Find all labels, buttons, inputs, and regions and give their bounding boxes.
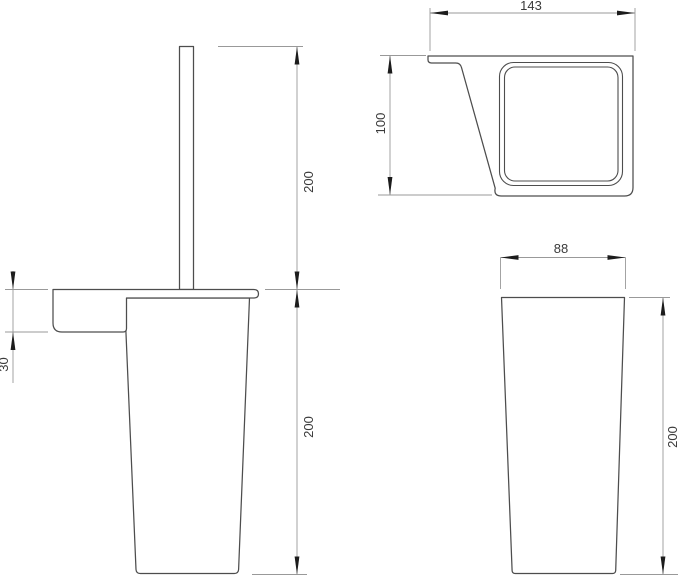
arrowhead-down-icon xyxy=(11,272,16,290)
dim-label-bracket-depth: 30 xyxy=(0,357,11,371)
arrowhead-down-icon xyxy=(295,557,300,575)
holder-top-outline xyxy=(428,56,633,196)
dim-label-cup-width: 88 xyxy=(554,241,568,256)
brush-cup-front xyxy=(125,298,250,574)
brush-cup-side xyxy=(502,298,625,574)
dim-label-handle-height: 200 xyxy=(301,171,316,193)
side-view: 88 200 xyxy=(501,241,678,575)
arrowhead-up-icon xyxy=(388,56,393,74)
arrowhead-up-icon xyxy=(295,47,300,65)
arrowhead-up-icon xyxy=(661,298,666,316)
dim-label-overall-depth: 100 xyxy=(373,113,388,135)
dim-label-cup-height: 200 xyxy=(301,416,316,438)
arrowhead-down-icon xyxy=(295,272,300,290)
arrowhead-down-icon xyxy=(388,177,393,195)
brush-handle-rod xyxy=(180,47,194,290)
arrowhead-right-icon xyxy=(608,255,626,260)
drawing-canvas: 200 200 30 143 100 xyxy=(0,0,678,576)
arrowhead-up-icon xyxy=(11,332,16,350)
arrowhead-left-icon xyxy=(430,11,448,16)
front-view: 200 200 30 xyxy=(0,47,340,575)
top-view: 143 100 xyxy=(373,0,635,196)
arrowhead-right-icon xyxy=(617,11,635,16)
arrowhead-down-icon xyxy=(661,557,666,575)
dim-label-side-height: 200 xyxy=(665,426,678,448)
dim-label-overall-width: 143 xyxy=(520,0,542,13)
arrowhead-up-icon xyxy=(295,290,300,308)
arrowhead-left-icon xyxy=(501,255,519,260)
technical-drawing: 200 200 30 143 100 xyxy=(0,0,678,576)
